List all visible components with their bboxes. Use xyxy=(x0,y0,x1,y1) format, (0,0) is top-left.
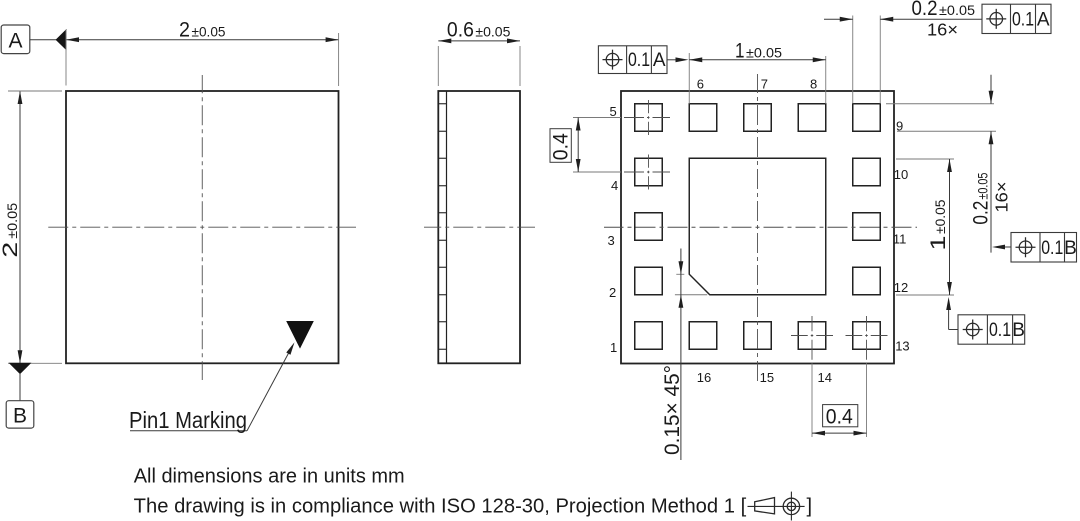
svg-text:Pin1 Marking: Pin1 Marking xyxy=(129,407,247,433)
svg-text:±0.05: ±0.05 xyxy=(939,2,975,18)
svg-text:3: 3 xyxy=(608,233,615,248)
svg-text:A: A xyxy=(8,30,22,53)
svg-text:0.4: 0.4 xyxy=(826,405,853,428)
svg-text:0.1: 0.1 xyxy=(1041,238,1063,259)
svg-text:±0.05: ±0.05 xyxy=(746,44,782,60)
svg-text:The drawing is in compliance w: The drawing is in compliance with ISO 12… xyxy=(134,495,747,517)
svg-text:9: 9 xyxy=(896,119,903,134)
svg-text:5: 5 xyxy=(610,104,617,119)
svg-text:4: 4 xyxy=(611,178,618,193)
svg-text:16×: 16× xyxy=(992,182,1012,213)
svg-text:7: 7 xyxy=(761,77,768,92)
svg-text:0.2: 0.2 xyxy=(970,201,993,225)
svg-text:8: 8 xyxy=(810,77,817,92)
svg-text:B: B xyxy=(1064,238,1077,259)
svg-text:14: 14 xyxy=(818,370,832,385)
svg-text:2: 2 xyxy=(0,242,22,258)
svg-text:0.2: 0.2 xyxy=(912,0,938,20)
svg-text:±0.05: ±0.05 xyxy=(932,199,948,234)
svg-text:0.4: 0.4 xyxy=(550,133,573,160)
svg-text:±0.05: ±0.05 xyxy=(475,23,510,39)
svg-text:0.15× 45°: 0.15× 45° xyxy=(661,365,684,455)
svg-text:13: 13 xyxy=(895,338,909,353)
svg-text:10: 10 xyxy=(894,167,908,182)
svg-text:1: 1 xyxy=(735,39,745,62)
svg-text:16×: 16× xyxy=(927,19,958,39)
svg-text:1: 1 xyxy=(927,236,950,251)
svg-text:1: 1 xyxy=(610,340,617,355)
svg-text:±0.05: ±0.05 xyxy=(4,203,20,239)
svg-text:6: 6 xyxy=(697,77,704,92)
svg-text:A: A xyxy=(1037,9,1050,30)
svg-text:0.1: 0.1 xyxy=(1012,9,1034,30)
svg-text:11: 11 xyxy=(893,232,907,247)
svg-text:±0.05: ±0.05 xyxy=(975,172,991,199)
svg-text:0.1: 0.1 xyxy=(989,320,1011,341)
svg-text:12: 12 xyxy=(894,280,908,295)
svg-text:B: B xyxy=(1012,320,1025,341)
svg-text:A: A xyxy=(653,50,666,71)
svg-text:2: 2 xyxy=(179,18,190,41)
svg-text:0.1: 0.1 xyxy=(628,50,650,71)
svg-text:16: 16 xyxy=(697,370,711,385)
svg-text:All dimensions are in units mm: All dimensions are in units mm xyxy=(134,466,405,488)
svg-text:15: 15 xyxy=(760,370,774,385)
svg-text:]: ] xyxy=(807,495,813,517)
svg-text:2: 2 xyxy=(609,285,616,300)
svg-text:B: B xyxy=(13,405,27,428)
svg-text:±0.05: ±0.05 xyxy=(192,23,226,39)
svg-text:0.6: 0.6 xyxy=(447,18,474,41)
